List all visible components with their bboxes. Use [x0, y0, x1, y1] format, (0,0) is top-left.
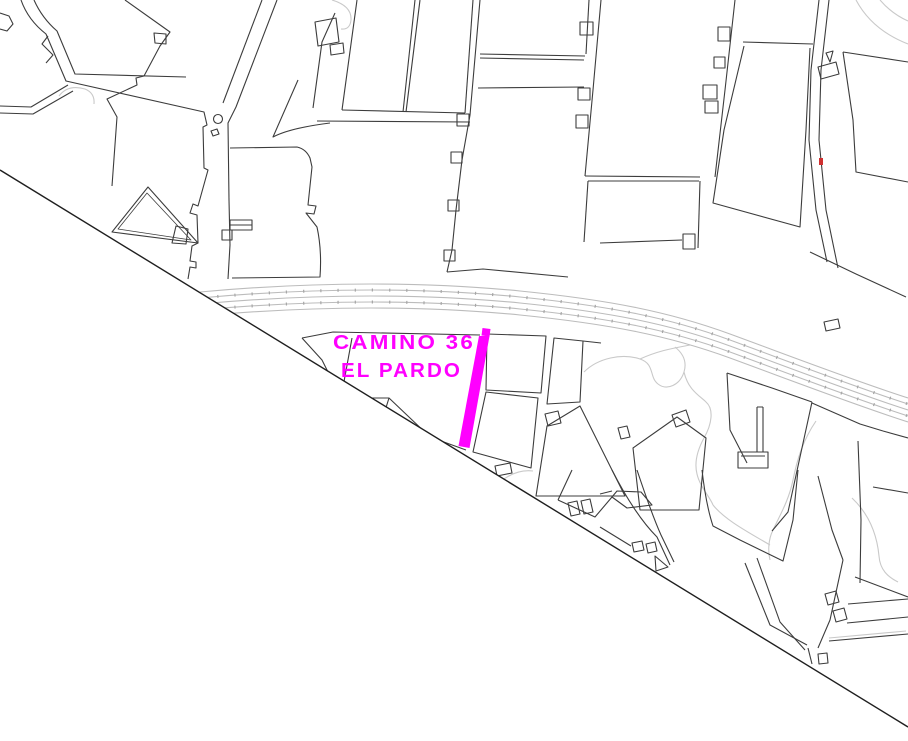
- street-label-line2: EL PARDO: [341, 360, 462, 382]
- cadastral-map[interactable]: CAMINO 36 EL PARDO: [0, 0, 908, 741]
- junction-circle: [214, 115, 223, 124]
- street-label-line1: CAMINO 36: [333, 332, 475, 354]
- selected-segment-cap[interactable]: [482, 328, 491, 337]
- red-survey-mark: [819, 158, 823, 165]
- map-canvas[interactable]: CAMINO 36 EL PARDO: [0, 0, 908, 741]
